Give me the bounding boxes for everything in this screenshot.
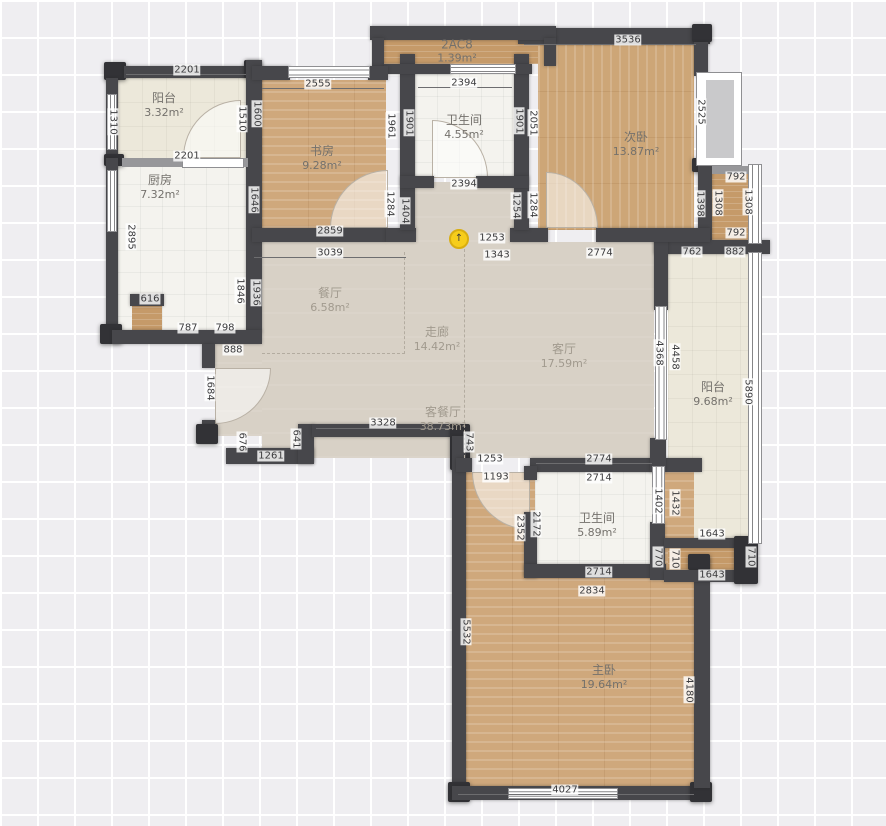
dim-label: 641 [291, 428, 302, 449]
dim-label: 1901 [404, 109, 415, 136]
wall-segment [252, 66, 290, 80]
dimension-line [524, 44, 696, 45]
dim-label: 762 [681, 247, 702, 258]
dim-label: 1193 [482, 472, 509, 483]
dim-label: 1846 [235, 277, 246, 304]
room-label-living-dining: 客餐厅38.73m² [420, 403, 467, 433]
wall-segment [544, 38, 556, 66]
window [655, 306, 667, 440]
dim-label: 1253 [478, 233, 505, 244]
room-label-bath1: 卫生间4.55m² [444, 111, 484, 141]
dim-label: 743 [464, 431, 475, 452]
dim-label: 2172 [531, 510, 542, 537]
dim-label: 710 [746, 546, 757, 567]
dim-label: 3536 [614, 35, 641, 46]
dim-label: 616 [139, 294, 160, 305]
wall-segment [368, 66, 388, 80]
dim-label: 1308 [713, 189, 724, 216]
dim-label: 4458 [670, 343, 681, 370]
wall-segment [386, 228, 416, 242]
lamp-arrow-glyph: ↑ [455, 233, 463, 244]
dim-label: 1961 [386, 112, 397, 139]
dim-label: 2714 [585, 473, 612, 484]
room-label-balcony-right: 阳台9.68m² [693, 378, 733, 408]
room-label-balcony-top-left: 阳台3.32m² [144, 89, 184, 119]
room-label-kitchen: 厨房7.32m² [140, 171, 180, 201]
dim-label: 2201 [173, 65, 200, 76]
wall-segment [694, 558, 710, 788]
dim-label: 1310 [108, 108, 119, 135]
dim-label: 2201 [173, 151, 200, 162]
wall-segment [654, 240, 668, 310]
dim-label: 2555 [304, 79, 331, 90]
window [288, 66, 370, 78]
dim-label: 2774 [585, 454, 612, 465]
dim-label: 1398 [695, 190, 706, 217]
wall-segment [596, 228, 710, 242]
dim-label: 4368 [654, 339, 665, 366]
zone-divider-dashed [262, 353, 405, 355]
dim-label: 1254 [511, 192, 522, 219]
floor-kitchen-flue [132, 304, 162, 332]
window [107, 170, 117, 232]
dim-label: 888 [222, 345, 243, 356]
dim-label: 5890 [743, 378, 754, 405]
dim-label: 2525 [696, 98, 707, 125]
dim-label: 1343 [483, 250, 510, 261]
window-pane [706, 80, 734, 158]
dim-label: 4027 [551, 785, 578, 796]
room-label-dining: 餐厅6.58m² [310, 284, 350, 314]
wall-segment [524, 466, 537, 480]
dim-label: 2859 [316, 226, 343, 237]
wall-segment [372, 38, 384, 66]
dim-label: 710 [670, 548, 681, 569]
dim-label: 1261 [257, 451, 284, 462]
wall-segment [456, 458, 472, 472]
dim-label: 5532 [461, 618, 472, 645]
dim-label: 3039 [316, 248, 343, 259]
wall-segment [476, 176, 529, 188]
dim-label: 798 [214, 323, 235, 334]
dim-label: 676 [237, 431, 248, 452]
wall-segment [510, 228, 548, 242]
room-label-living: 客厅17.59m² [541, 340, 588, 370]
dim-label: 787 [177, 323, 198, 334]
window [450, 64, 516, 74]
room-label-bedroom2: 次卧13.87m² [613, 128, 660, 158]
zone-divider-dashed [404, 252, 406, 354]
dim-label: 1600 [252, 100, 263, 127]
room-label-corridor: 走廊14.42m² [414, 323, 461, 353]
dim-label: 2774 [586, 248, 613, 259]
wall-corner-block [688, 554, 710, 570]
dim-label: 1901 [514, 107, 525, 134]
ceiling-lamp-icon: ↑ [449, 229, 469, 249]
wall-corner-block [692, 24, 712, 42]
room-label-master: 主卧19.64m² [581, 661, 628, 691]
wall-segment [664, 538, 742, 548]
dim-label: 1643 [698, 570, 725, 581]
dim-label: 2394 [450, 78, 477, 89]
dim-label: 2051 [528, 109, 539, 136]
dim-label: 882 [724, 247, 745, 258]
dim-label: 1643 [698, 529, 725, 540]
dim-label: 1284 [385, 190, 396, 217]
wall-segment [514, 64, 532, 74]
room-label-study: 书房9.28m² [302, 142, 342, 172]
dim-label: 1936 [251, 279, 262, 306]
dim-label: 4180 [684, 676, 695, 703]
room-label-ac-platform: 2AC81.39m² [437, 38, 477, 65]
room-label-bath2: 卫生间5.89m² [577, 509, 617, 539]
wall-segment [202, 344, 215, 368]
dim-label: 2895 [126, 223, 137, 250]
wall-segment [384, 64, 452, 74]
floor-plan-canvas: ↑ 阳台3.32m² 厨房7.32m² 书房9.28m² 卫生间4.55m² 次… [0, 0, 886, 826]
wall-segment [452, 436, 466, 788]
dim-label: 1684 [205, 374, 216, 401]
dim-label: 792 [725, 228, 746, 239]
dim-label: 1432 [670, 489, 681, 516]
dim-label: 1404 [400, 197, 411, 224]
dim-label: 1402 [653, 487, 664, 514]
dim-label: 2834 [578, 586, 605, 597]
dim-label: 1510 [237, 105, 248, 132]
wall-segment [530, 458, 702, 472]
dim-label: 2714 [585, 567, 612, 578]
dim-label: 1284 [528, 191, 539, 218]
dim-label: 2352 [515, 514, 526, 541]
wall-segment [694, 42, 708, 76]
dim-label: 1308 [743, 188, 754, 215]
dim-label: 2394 [450, 179, 477, 190]
dim-label: 770 [653, 546, 664, 567]
dim-label: 3328 [369, 418, 396, 429]
dim-label: 792 [725, 172, 746, 183]
wall-segment [400, 176, 434, 188]
wall-corner-block [196, 424, 218, 444]
dim-label: 1646 [249, 186, 260, 213]
dim-label: 1253 [476, 454, 503, 465]
